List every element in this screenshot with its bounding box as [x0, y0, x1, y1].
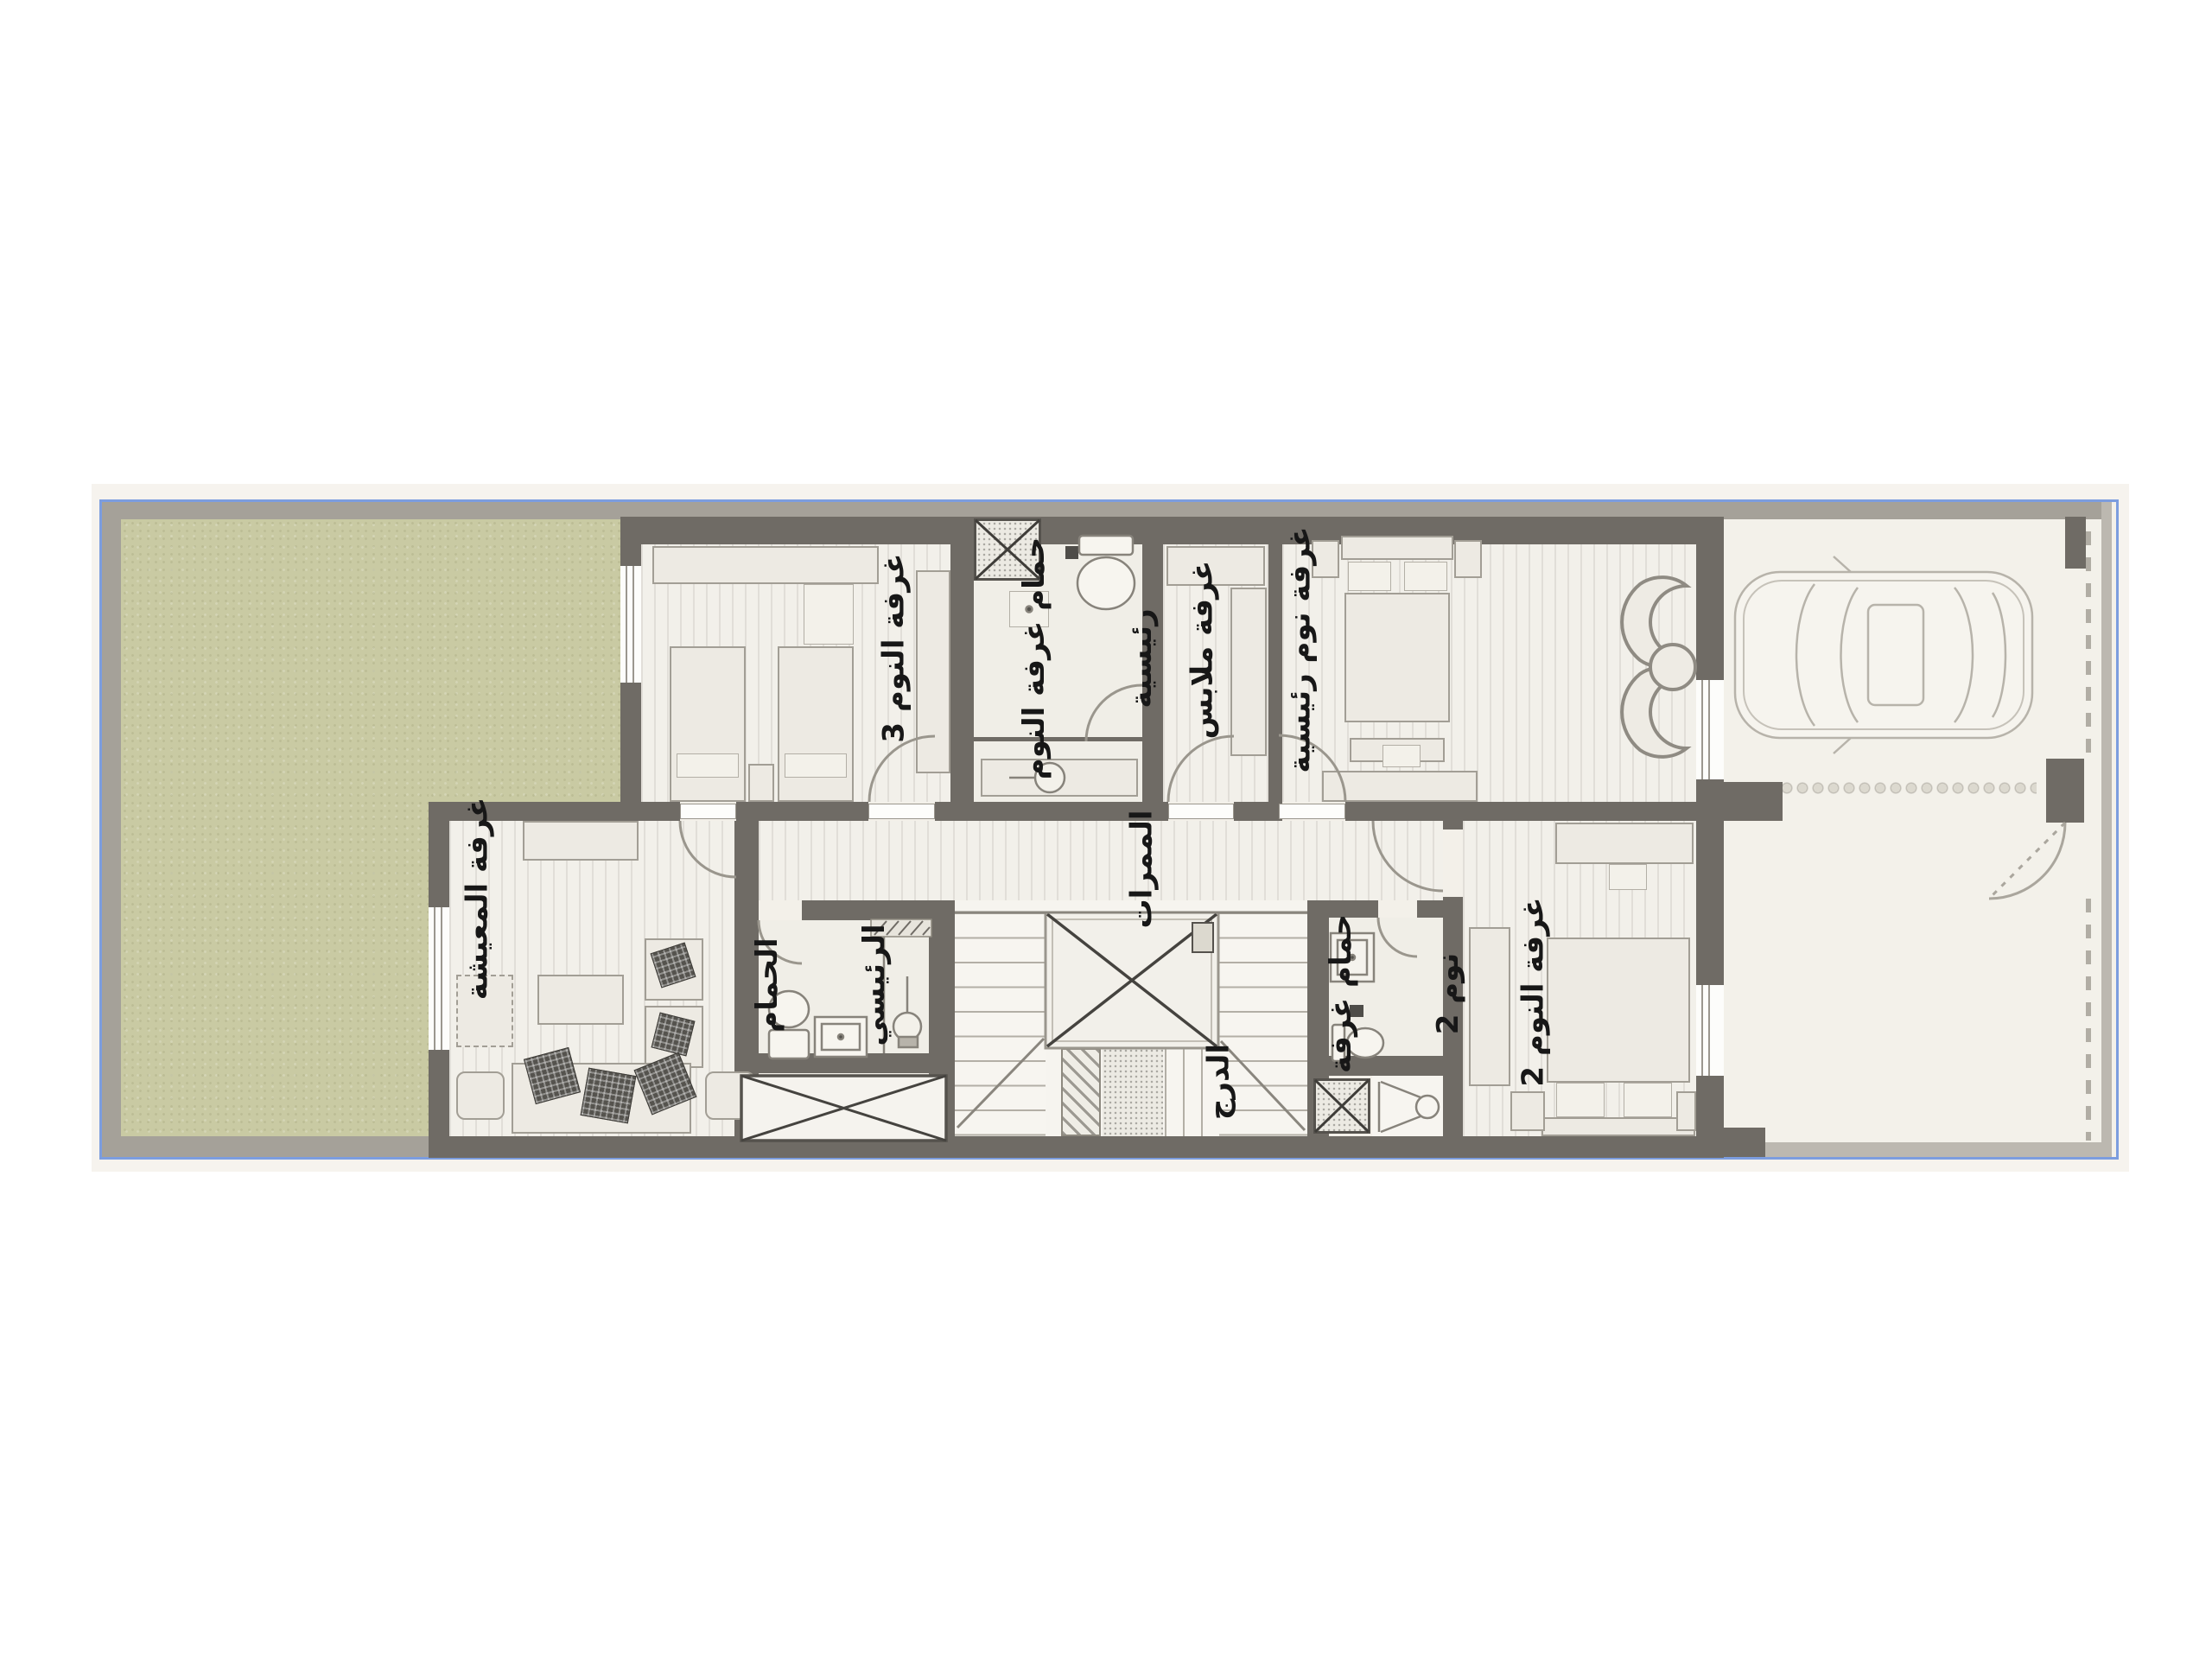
driveway-floor [1724, 519, 2101, 1142]
wall-mainbath-bottom [739, 1053, 949, 1073]
room-label-text: غرفة النوم 3 [876, 553, 912, 742]
garden-area [121, 519, 430, 1136]
bedroom3-window [620, 566, 641, 683]
single-bed-icon [670, 646, 746, 802]
single-bed-pillow [785, 753, 847, 778]
wall-band-e [1345, 802, 1724, 821]
shaft-box-bottom [1313, 1078, 1370, 1134]
room-label-text: غرفة المعيشة [460, 798, 495, 1001]
label-bedroom2: غرفة النوم 2 [1444, 897, 1623, 1086]
room-label-text: الحمام [750, 924, 785, 1046]
corner-stub-bottom-right [1724, 1128, 1765, 1157]
wardrobe-icon [1555, 823, 1694, 864]
room-label-text: حمام غرفة [1324, 914, 1359, 1073]
pillow-icon [1556, 1083, 1605, 1117]
pillow-icon [1404, 562, 1447, 591]
gate-post [2046, 759, 2084, 823]
nightstand-icon [1454, 540, 1482, 578]
stairs-left-flight [955, 912, 1046, 1136]
vanity-nook-floor [1372, 1076, 1443, 1136]
wall-band-d [1234, 802, 1279, 821]
room-label-text: غرفة النوم 2 [1516, 897, 1551, 1086]
boundary-wall-right [2101, 502, 2112, 1157]
wall-exterior-east-upper [1696, 517, 1724, 680]
floor-plan-canvas: غرفة النوم 3 حمام غرفة النوم رئيسية غرفة… [0, 0, 2212, 1659]
garden-area-extension [429, 519, 622, 804]
boundary-wall-left [102, 502, 123, 1157]
wall-return-parking [1724, 782, 1783, 821]
room-label-text: حمام غرفة النوم [1017, 537, 1052, 779]
label-living: غرفة المعيشة [388, 798, 567, 1001]
pouf-icon [705, 1071, 755, 1120]
label-main-bath: الحمام الرئيسي [678, 924, 965, 1046]
wall-exterior-bottom [429, 1136, 1724, 1158]
stairs-hatched-landing [1061, 1048, 1101, 1136]
single-bed-pillow [677, 753, 739, 778]
wall-bedroom2-west-a [1443, 821, 1463, 829]
double-bed-headboard [1541, 1117, 1695, 1136]
bedroom2-window [1696, 985, 1724, 1076]
room-label-text: الممرات [1124, 810, 1160, 929]
wall-mainbath-top [802, 900, 949, 920]
corner-post-top-right [2065, 517, 2086, 569]
wall-band-b [736, 802, 868, 821]
label-master-bedroom: غرفة نوم رئيسية [1211, 526, 1389, 772]
master-bedroom-window [1696, 680, 1724, 779]
fence-dashed-top [2086, 531, 2091, 756]
fence-dashed-bottom [2086, 899, 2091, 1141]
nightstand-icon [1510, 1091, 1545, 1131]
wardrobe-knob [1609, 864, 1647, 890]
boundary-wall-bottom-left [102, 1135, 434, 1157]
dresser-icon [1322, 771, 1478, 802]
nightstand-icon [1676, 1091, 1696, 1131]
throw-cushion [581, 1068, 637, 1124]
wall-exterior-east-lower [1696, 1076, 1724, 1158]
room-label-text: الدرج [1201, 1044, 1236, 1120]
pouf-icon [456, 1071, 505, 1120]
bedroom3-door-leaf [868, 804, 935, 819]
living-door-leaf [680, 804, 736, 819]
room-label-text: الرئيسي [857, 924, 893, 1046]
pillow-icon [1624, 1083, 1672, 1117]
label-corridors: الممرات [1052, 810, 1231, 929]
nightstand-icon [748, 764, 774, 802]
boundary-wall-bottom-right [1724, 1142, 2107, 1157]
room-label-text: غرفة نوم رئيسية [1282, 526, 1318, 772]
master-bedroom-door-leaf [1279, 804, 1345, 819]
